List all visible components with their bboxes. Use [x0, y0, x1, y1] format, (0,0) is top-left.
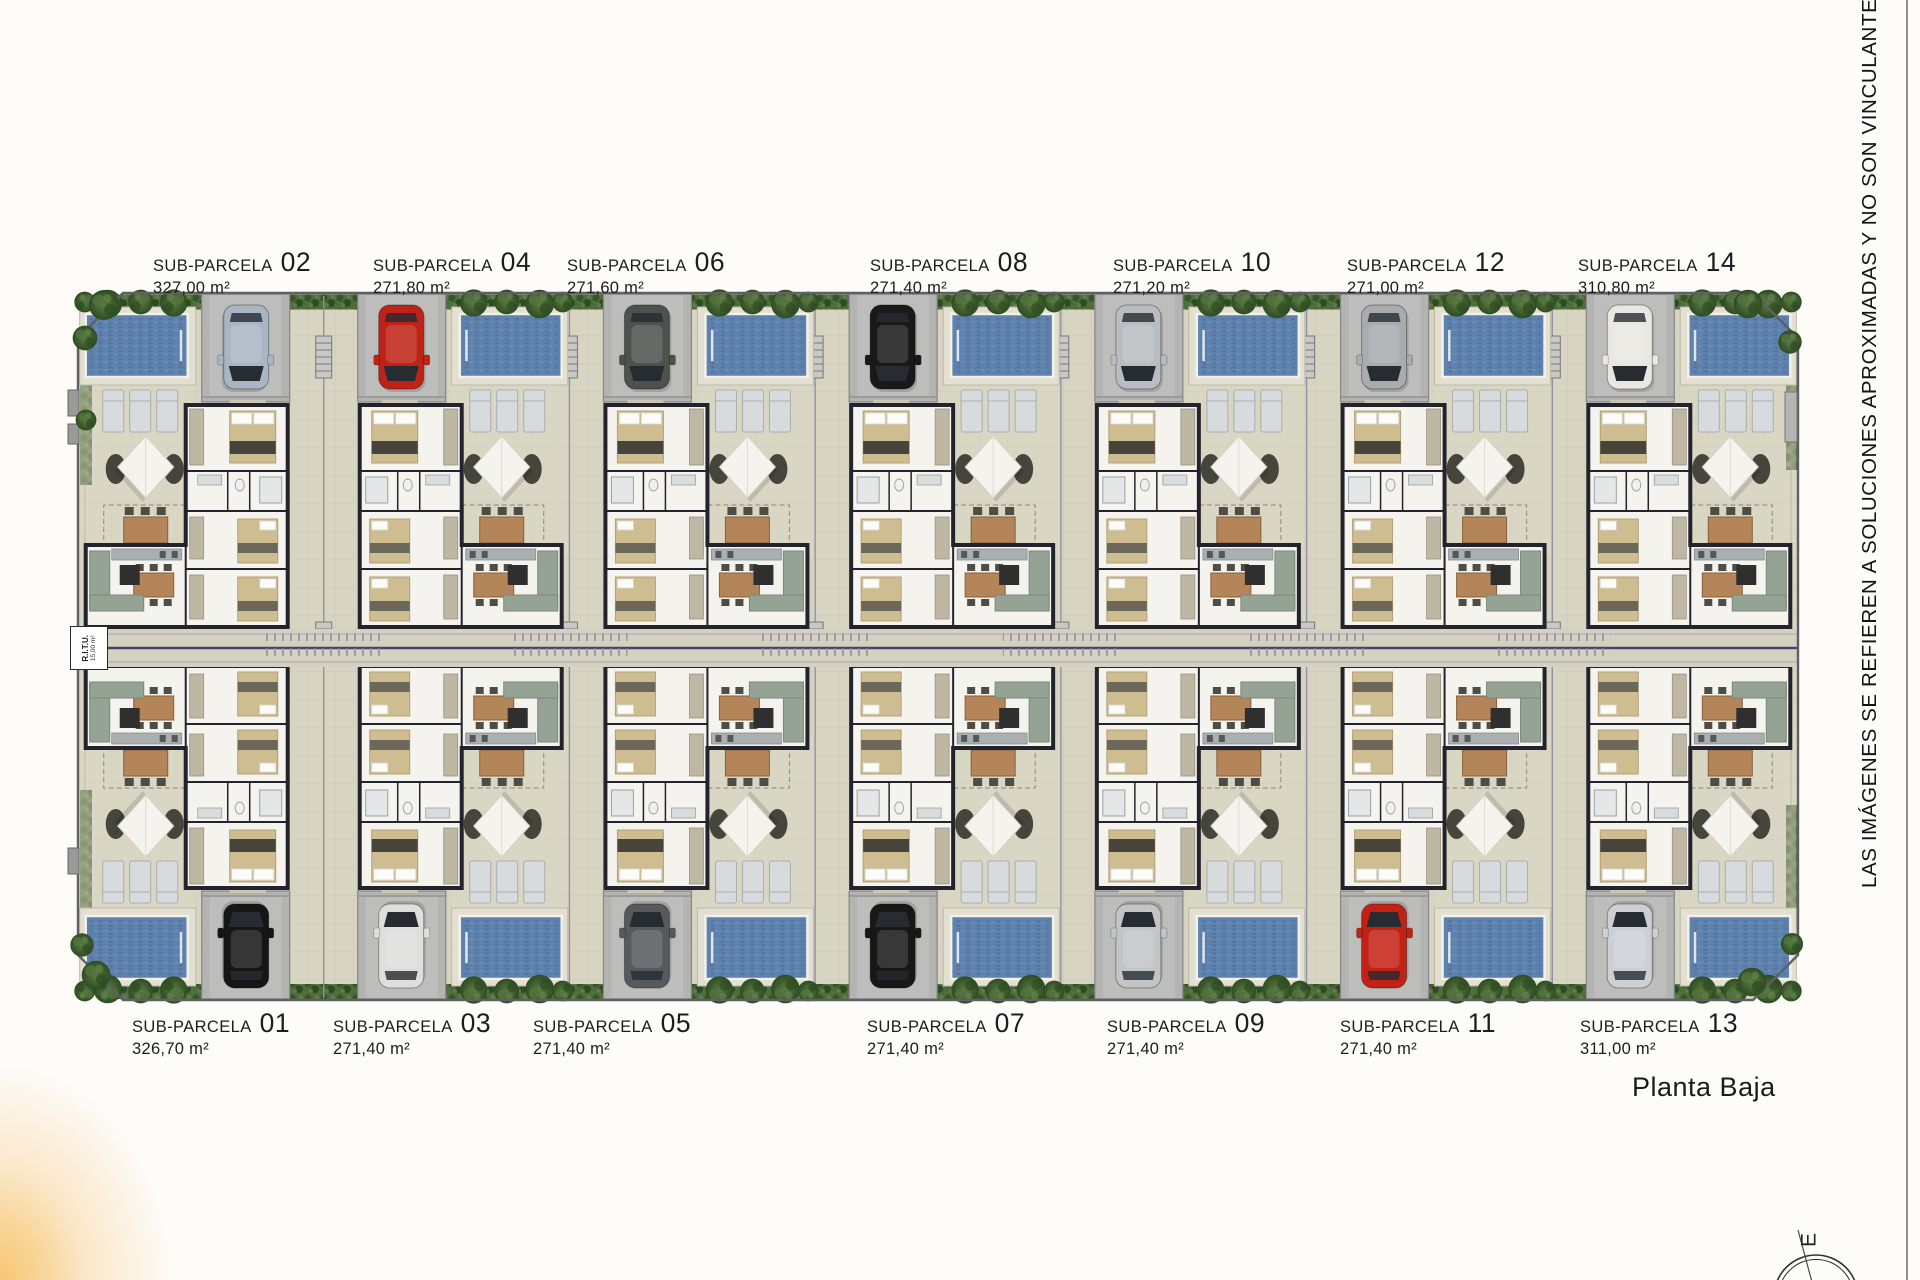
villa-unit-13 — [1586, 666, 1801, 1004]
parcel-label-bottom-3: SUB-PARCELA07271,40 m² — [867, 1008, 1025, 1059]
parcel-number: 12 — [1475, 247, 1505, 278]
villa-unit-04 — [358, 289, 573, 627]
parcel-number: 01 — [260, 1008, 290, 1039]
parcel-number: 13 — [1708, 1008, 1738, 1039]
parcel-label-top-2: SUB-PARCELA06271,60 m² — [567, 247, 725, 298]
parcel-label-prefix: SUB-PARCELA — [1578, 257, 1698, 276]
parcel-area: 326,70 m² — [132, 1040, 290, 1059]
parcel-label-top-6: SUB-PARCELA14310,80 m² — [1578, 247, 1736, 298]
ritu-area: 15,00 m² — [90, 635, 97, 662]
villa-unit-05 — [603, 666, 818, 1004]
parcel-label-prefix: SUB-PARCELA — [870, 257, 990, 276]
parcel-number: 11 — [1468, 1008, 1497, 1039]
parcel-area: 271,40 m² — [867, 1040, 1025, 1059]
parcel-area: 271,40 m² — [870, 279, 1028, 298]
parcel-area: 271,40 m² — [1340, 1040, 1496, 1059]
parcel-area: 271,80 m² — [373, 279, 531, 298]
villa-unit-06 — [603, 289, 818, 627]
villa-unit-10 — [1095, 289, 1310, 627]
parcel-area: 327,00 m² — [153, 279, 311, 298]
villa-unit-14 — [1586, 289, 1801, 627]
parcel-label-prefix: SUB-PARCELA — [1113, 257, 1233, 276]
parcel-number: 08 — [998, 247, 1028, 278]
plan-title: Planta Baja — [1632, 1072, 1776, 1103]
parcel-number: 10 — [1241, 247, 1271, 278]
parcel-label-prefix: SUB-PARCELA — [1347, 257, 1467, 276]
parcel-number: 07 — [995, 1008, 1025, 1039]
parcel-number: 05 — [661, 1008, 691, 1039]
parcel-label-bottom-6: SUB-PARCELA13311,00 m² — [1580, 1008, 1738, 1059]
ritu-box: R.I.T.U. 15,00 m² — [70, 626, 108, 670]
parcel-area: 271,00 m² — [1347, 279, 1505, 298]
parcel-label-top-3: SUB-PARCELA08271,40 m² — [870, 247, 1028, 298]
parcel-label-top-0: SUB-PARCELA02327,00 m² — [153, 247, 311, 298]
ritu-label: R.I.T.U. — [81, 635, 90, 662]
parcel-label-prefix: SUB-PARCELA — [132, 1018, 252, 1037]
parcel-label-prefix: SUB-PARCELA — [153, 257, 273, 276]
parcel-label-prefix: SUB-PARCELA — [533, 1018, 653, 1037]
compass-east-label: E — [1798, 1233, 1821, 1247]
parcel-label-prefix: SUB-PARCELA — [1580, 1018, 1700, 1037]
villa-unit-08 — [849, 289, 1064, 627]
parcel-label-bottom-4: SUB-PARCELA09271,40 m² — [1107, 1008, 1265, 1059]
parcel-label-bottom-2: SUB-PARCELA05271,40 m² — [533, 1008, 691, 1059]
parcel-number: 14 — [1706, 247, 1736, 278]
parcel-area: 310,80 m² — [1578, 279, 1736, 298]
parcel-number: 02 — [281, 247, 311, 278]
villa-unit-07 — [849, 666, 1064, 1004]
parcel-label-bottom-1: SUB-PARCELA03271,40 m² — [333, 1008, 491, 1059]
page-border-line — [1906, 0, 1908, 1280]
parcel-area: 271,20 m² — [1113, 279, 1271, 298]
parcel-area: 271,40 m² — [533, 1040, 691, 1059]
villa-unit-09 — [1095, 666, 1310, 1004]
parcel-number: 09 — [1235, 1008, 1265, 1039]
villa-unit-03 — [358, 666, 573, 1004]
parcel-label-top-4: SUB-PARCELA10271,20 m² — [1113, 247, 1271, 298]
villa-unit-12 — [1341, 289, 1556, 627]
villa-unit-01 — [74, 666, 289, 1004]
parcel-number: 04 — [501, 247, 531, 278]
parcel-label-bottom-0: SUB-PARCELA01326,70 m² — [132, 1008, 290, 1059]
villa-unit-11 — [1341, 666, 1556, 1004]
parcel-label-prefix: SUB-PARCELA — [1107, 1018, 1227, 1037]
parcel-label-prefix: SUB-PARCELA — [373, 257, 493, 276]
parcel-area: 271,40 m² — [333, 1040, 491, 1059]
parcel-area: 271,60 m² — [567, 279, 725, 298]
parcel-label-prefix: SUB-PARCELA — [567, 257, 687, 276]
parcel-label-prefix: SUB-PARCELA — [333, 1018, 453, 1037]
parcel-label-prefix: SUB-PARCELA — [867, 1018, 987, 1037]
parcel-label-bottom-5: SUB-PARCELA11271,40 m² — [1340, 1008, 1496, 1059]
site-plan-page: { "label_prefix": "SUB-PARCELA", "plan_t… — [0, 0, 1920, 1280]
villa-unit-02 — [74, 289, 289, 627]
parcel-label-prefix: SUB-PARCELA — [1340, 1018, 1460, 1037]
parcel-label-top-1: SUB-PARCELA04271,80 m² — [373, 247, 531, 298]
parcel-area: 311,00 m² — [1580, 1040, 1738, 1059]
parcel-area: 271,40 m² — [1107, 1040, 1265, 1059]
parcel-number: 03 — [461, 1008, 491, 1039]
disclaimer-vertical-text: LAS IMÁGENES SE REFIEREN A SOLUCIONES AP… — [1858, 0, 1882, 888]
parcel-label-top-5: SUB-PARCELA12271,00 m² — [1347, 247, 1505, 298]
parcel-number: 06 — [695, 247, 725, 278]
compass-icon: E — [1740, 1180, 1920, 1280]
